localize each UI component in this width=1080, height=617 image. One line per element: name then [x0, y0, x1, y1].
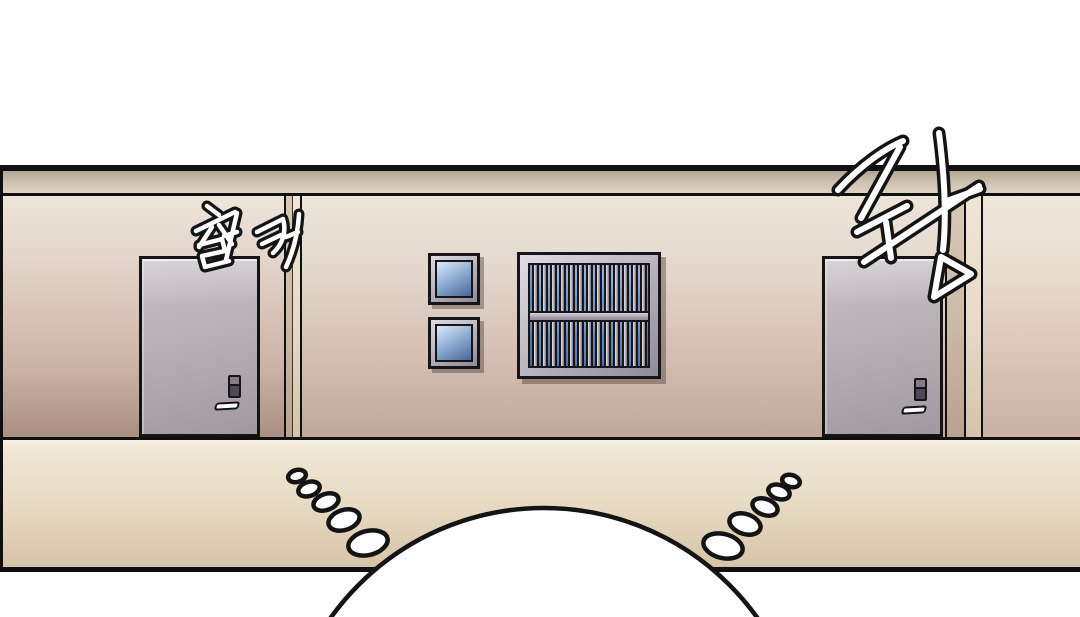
window-middle-rail — [530, 311, 648, 322]
picture-frame-glass — [435, 260, 473, 298]
seam-light-strip — [293, 196, 300, 437]
barred-window — [517, 252, 661, 379]
door-handle — [214, 401, 241, 410]
panel-border-left — [0, 165, 3, 571]
door-handle — [901, 405, 928, 414]
picture-frame-top — [428, 253, 480, 305]
door-lock-keypad — [914, 378, 927, 401]
wall-section-right — [983, 196, 1080, 437]
wall-seam-left — [284, 196, 302, 437]
seam-light-strip — [966, 196, 981, 437]
door-lock-keypad — [228, 375, 241, 398]
picture-frame-glass — [435, 324, 473, 362]
door-surface-highlight — [142, 259, 257, 434]
comic-panel-page — [0, 0, 1080, 617]
keypad-upper-cell — [916, 380, 925, 389]
window-glass — [528, 263, 650, 368]
hallway-ceiling-molding — [0, 171, 1080, 196]
door-left — [139, 256, 260, 437]
wall-seam-right — [945, 196, 983, 437]
hallway-floor — [0, 440, 1080, 572]
picture-frame-bottom — [428, 317, 480, 369]
seam-tan-strip — [947, 196, 964, 437]
door-right — [822, 256, 943, 437]
keypad-upper-cell — [230, 377, 239, 386]
